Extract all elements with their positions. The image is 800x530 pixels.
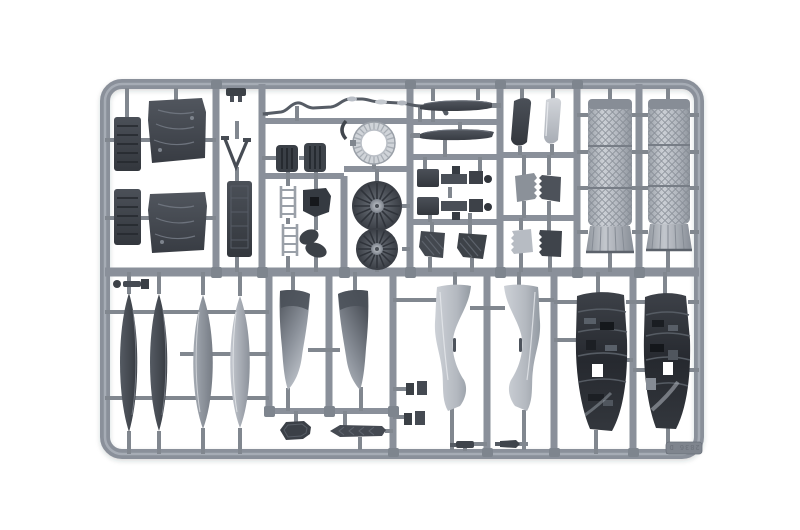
part-butterfly-bracket [297, 226, 329, 260]
part-serrated-panel-1 [515, 173, 537, 202]
part-boarding-ladder-2 [282, 224, 298, 256]
part-pentagon-box [303, 188, 331, 217]
part-ribbed-box-2 [304, 143, 326, 172]
part-serrated-panel-3 [511, 229, 533, 254]
part-fan-disc-1 [352, 181, 402, 231]
part-greebled-panel-2 [644, 293, 690, 429]
part-mini-bracket-2 [495, 440, 520, 448]
part-spine-strip-2 [150, 294, 167, 431]
part-nozzle-can-1 [586, 99, 634, 252]
part-ribbed-block-1 [114, 117, 141, 171]
part-stabilator-1 [420, 100, 501, 111]
part-serrated-panel-4 [539, 230, 562, 257]
part-duct-half-2 [504, 285, 540, 411]
sprue-photo: 2836 D [0, 0, 800, 530]
part-duct-half-1 [435, 285, 471, 411]
part-fan-disc-2 [356, 228, 398, 270]
part-stabilator-2 [411, 129, 494, 140]
part-nozzle-can-2 [646, 99, 692, 250]
part-ribbed-door-1 [419, 231, 445, 258]
part-boarding-ladder-1 [280, 186, 296, 218]
sprue-marking: 2836 D [666, 442, 702, 454]
part-ribbed-box-1 [276, 145, 298, 172]
part-small-hook [342, 121, 346, 139]
sprue-marking-text: 2836 D [668, 443, 699, 451]
part-octagonal-plate [280, 421, 311, 440]
part-engraved-panel-1 [148, 98, 206, 163]
part-clip-pair-2 [404, 411, 425, 425]
part-ribbed-block-2 [114, 189, 141, 245]
part-chevron-blade [330, 425, 386, 437]
part-serrated-panel-2 [539, 175, 561, 202]
part-tail-fin-1 [280, 290, 310, 390]
part-clip-pair-1 [406, 381, 427, 395]
part-v-brace [221, 136, 251, 167]
part-engraved-panel-2 [148, 192, 207, 253]
part-tail-fin-2 [338, 290, 368, 390]
part-intake-lip-light [544, 98, 561, 144]
part-ribbed-door-2 [457, 233, 487, 259]
part-fan-ring [350, 122, 395, 164]
part-seat-back-panel [227, 181, 252, 257]
sprue-illustration: 2836 D [0, 0, 800, 530]
part-greebled-panel-1 [576, 292, 627, 431]
part-top-rail-widget [226, 88, 246, 102]
part-intake-lip-dark [511, 98, 531, 145]
